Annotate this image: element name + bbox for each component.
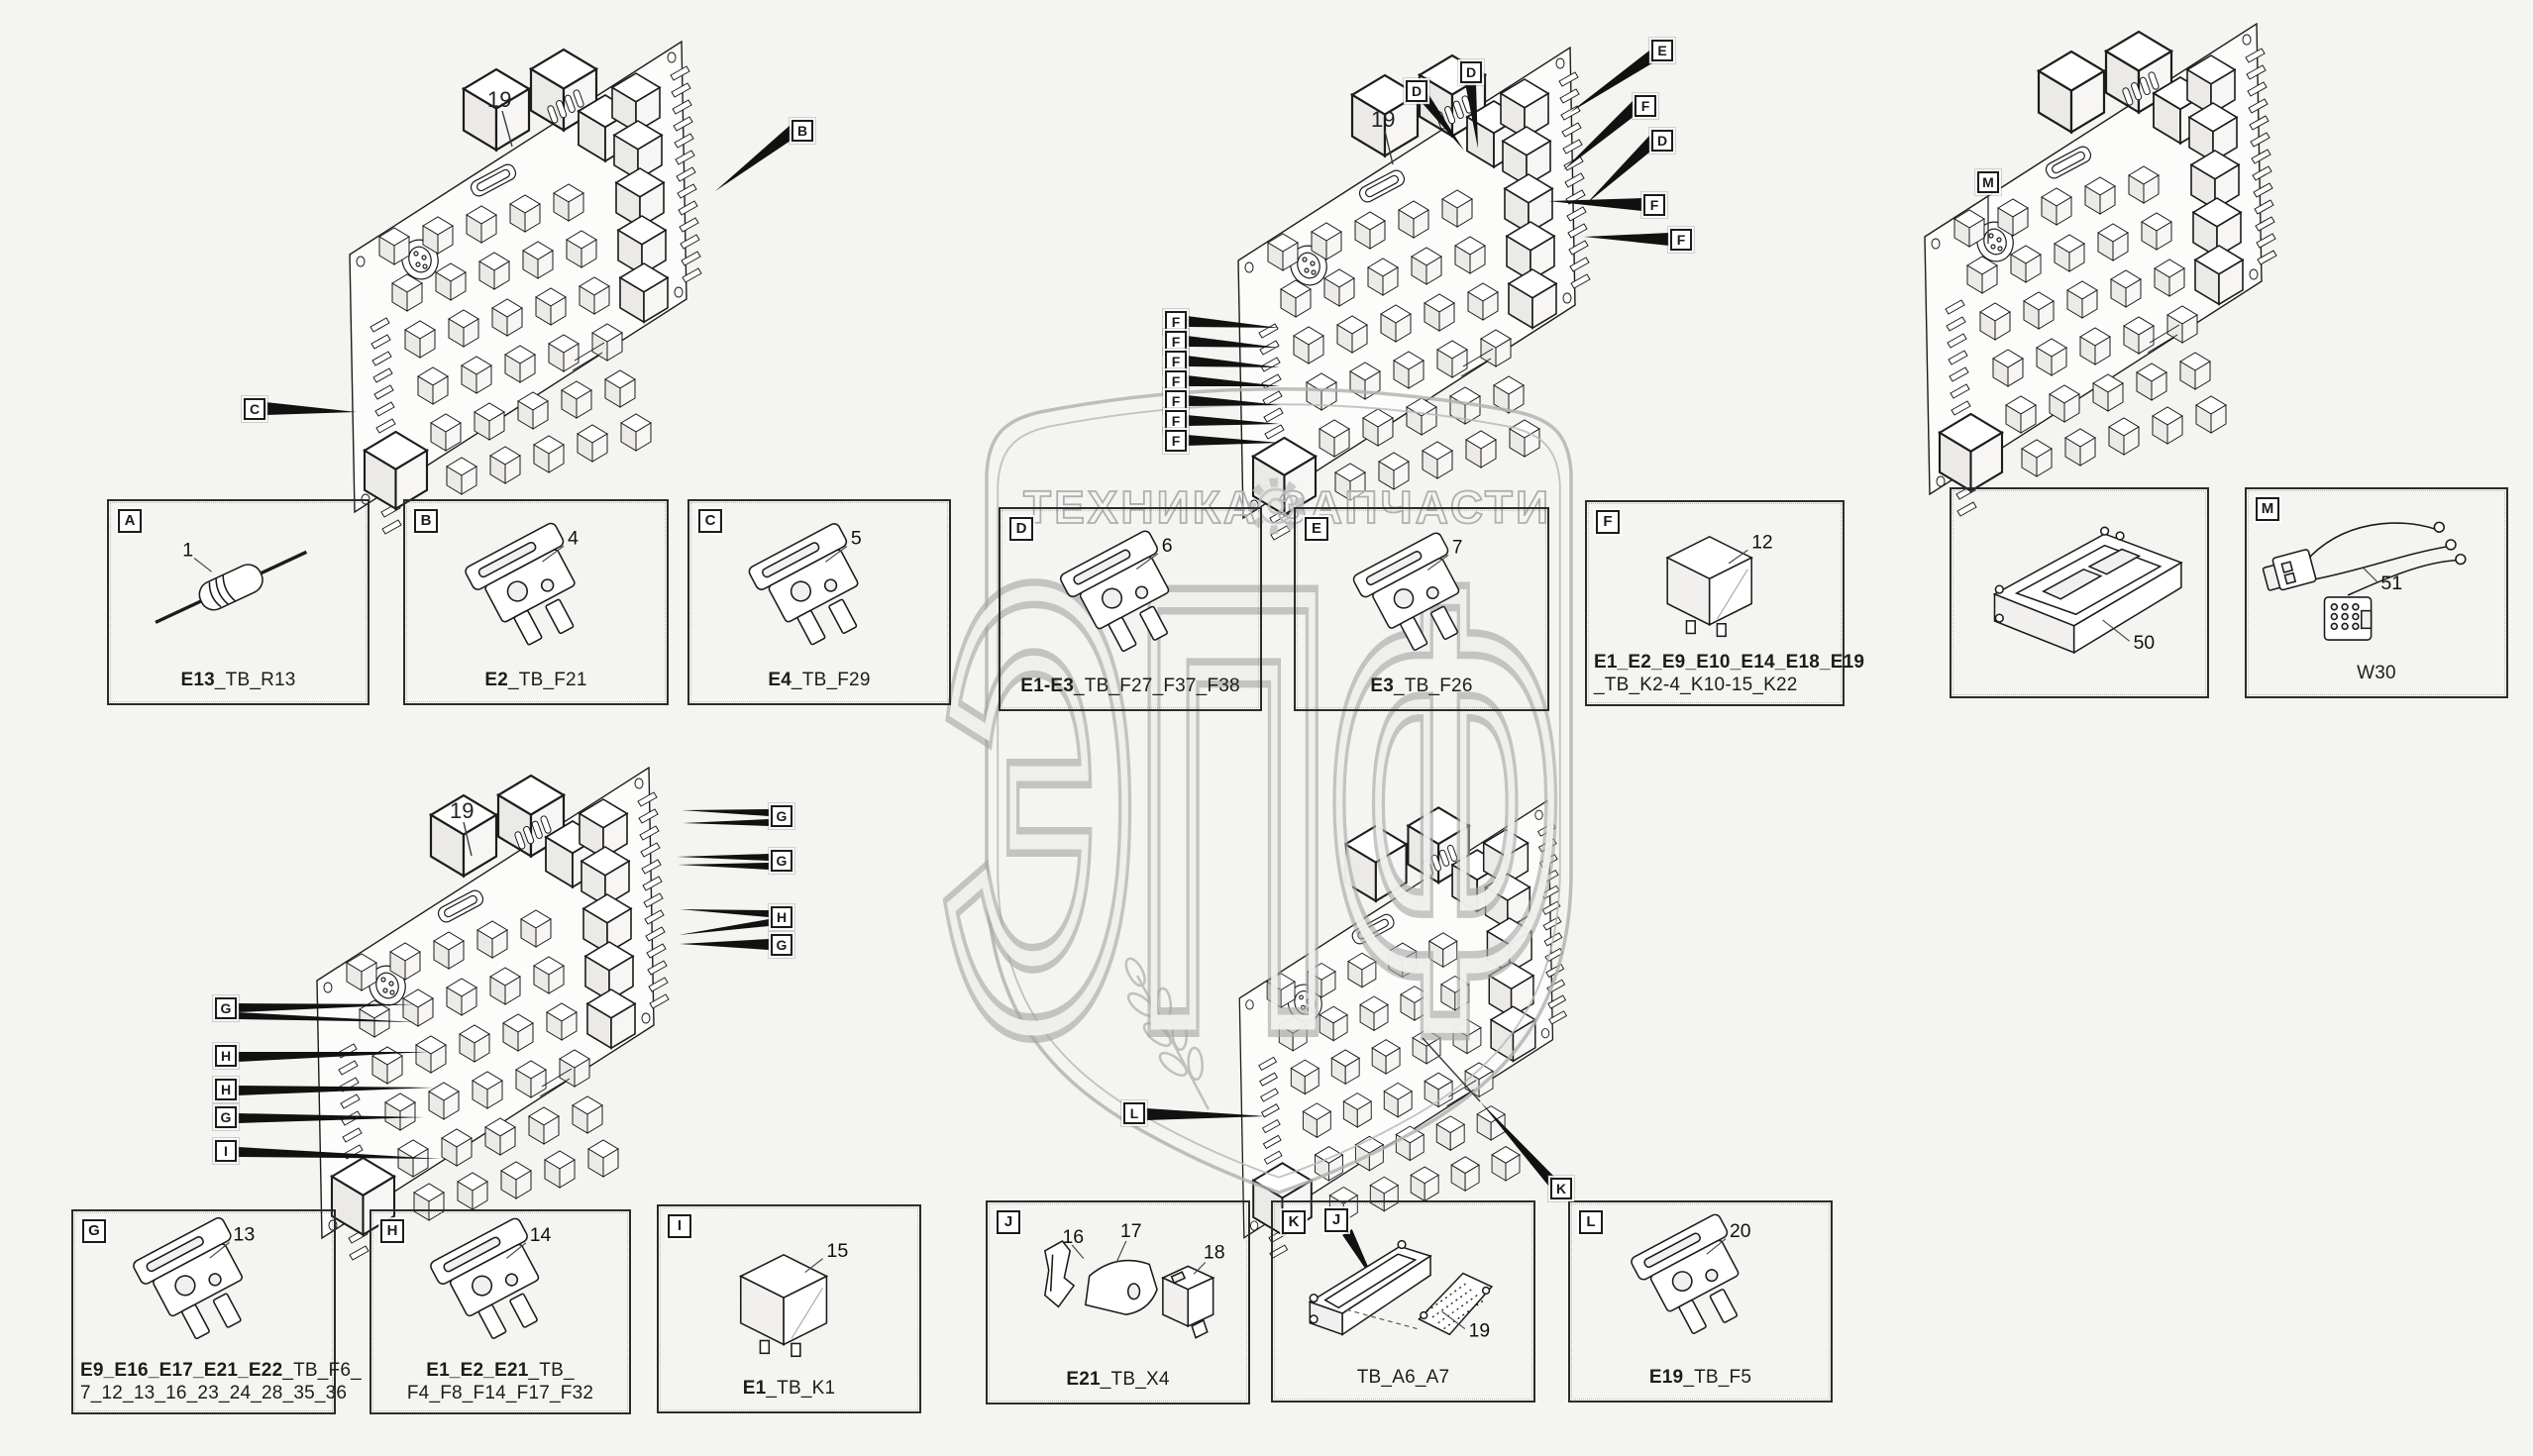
detail-box-E-letter: E xyxy=(1305,517,1328,541)
part-caption: W30 xyxy=(2247,663,2506,684)
svg-text:50: 50 xyxy=(2134,633,2155,654)
fusebox-board-top-left xyxy=(350,42,701,534)
callout-D2: D xyxy=(1460,61,1482,83)
callout-G-l1: G xyxy=(215,997,237,1019)
callout-F-col-3: F xyxy=(1165,351,1187,372)
part-caption: E9_E16_E17_E21_E22_TB_F6_ 7_12_13_16_23_… xyxy=(73,1359,334,1404)
detail-box-D-letter: D xyxy=(1009,517,1033,541)
part-caption: E21_TB_X4 xyxy=(988,1369,1248,1391)
callout-G-r4: G xyxy=(771,934,792,956)
svg-text:16: 16 xyxy=(1062,1226,1084,1248)
parts-diagram-page: ЭПФ ЭПФ ТЕХНИКА ЗАПЧАСТИ xyxy=(0,0,2533,1456)
callout-F3: F xyxy=(1670,229,1692,251)
svg-text:18: 18 xyxy=(1204,1242,1225,1264)
detail-box-B: B 4 E2_TB_F21 xyxy=(403,499,669,705)
callout-G-r2: G xyxy=(771,850,792,872)
callout-I-l5: I xyxy=(215,1140,237,1162)
board2-item-number: 19 xyxy=(1371,107,1395,133)
detail-box-J: J 16 17 18 E21_TB_X4 xyxy=(986,1200,1250,1404)
callout-F-col-1: F xyxy=(1165,311,1187,333)
svg-text:6: 6 xyxy=(1162,535,1173,557)
detail-box-K-letter: K xyxy=(1282,1210,1306,1234)
callout-H-l3: H xyxy=(215,1079,237,1100)
svg-text:19: 19 xyxy=(1469,1320,1490,1341)
callout-G-l4: G xyxy=(215,1106,237,1128)
fusebox-board-top-middle xyxy=(1238,48,1590,540)
svg-text:51: 51 xyxy=(2380,572,2402,594)
part-caption: E19_TB_F5 xyxy=(1570,1367,1831,1389)
svg-text:15: 15 xyxy=(826,1240,848,1262)
part-caption: E4_TB_F29 xyxy=(689,670,949,691)
detail-box-D: D 6 E1-E3_TB_F27_F37_F38 xyxy=(999,507,1262,711)
callout-F-col-5: F xyxy=(1165,390,1187,412)
svg-text:5: 5 xyxy=(851,528,862,550)
detail-box-G-letter: G xyxy=(82,1219,106,1243)
detail-box-M: M 51 W30 xyxy=(2245,487,2508,698)
callout-F-col-7: F xyxy=(1165,430,1187,452)
detail-box-G: G 13 E9_E16_E17_E21_E22_TB_F6_ 7_12_13_1… xyxy=(71,1209,336,1414)
callout-F2: F xyxy=(1643,194,1665,216)
svg-text:12: 12 xyxy=(1751,532,1772,553)
callout-G-r1: G xyxy=(771,805,792,827)
detail-box-K: K J 19 TB_A6_A7 xyxy=(1271,1200,1535,1403)
svg-text:20: 20 xyxy=(1730,1221,1750,1242)
callout-L: L xyxy=(1123,1102,1145,1124)
callout-B: B xyxy=(792,120,813,142)
svg-text:14: 14 xyxy=(530,1224,552,1246)
detail-box-C: C 5 E4_TB_F29 xyxy=(687,499,951,705)
module-bracket-figure: 50 xyxy=(1952,489,2207,696)
callout-D1: D xyxy=(1406,80,1427,102)
detail-box-B-letter: B xyxy=(414,509,438,533)
callout-K: K xyxy=(1550,1178,1572,1199)
callout-F1: F xyxy=(1635,95,1656,117)
part-caption: TB_A6_A7 xyxy=(1273,1367,1533,1389)
detail-box-I: I 15 E1_TB_K1 xyxy=(657,1204,921,1413)
callout-F-col-2: F xyxy=(1165,331,1187,353)
svg-text:13: 13 xyxy=(233,1223,255,1245)
svg-text:7: 7 xyxy=(1452,537,1463,558)
detail-box-H-letter: H xyxy=(380,1219,404,1243)
detail-box-H: H 14 E1_E2_E21_TB_ F4_F8_F14_F17_F32 xyxy=(369,1209,631,1414)
callout-H-l2: H xyxy=(215,1045,237,1067)
detail-box-C-letter: C xyxy=(698,509,722,533)
detail-box-L-letter: L xyxy=(1579,1210,1603,1234)
detail-box-F-letter: F xyxy=(1596,510,1620,534)
board4-item-number: 19 xyxy=(450,798,474,824)
detail-box-A: A 1 E13_TB_R13 xyxy=(107,499,369,705)
detail-box-J-letter: J xyxy=(997,1210,1020,1234)
svg-text:4: 4 xyxy=(568,527,579,549)
detail-box-A-letter: A xyxy=(118,509,142,533)
detail-box-L: L 20 E19_TB_F5 xyxy=(1568,1200,1833,1403)
part-caption: E3_TB_F26 xyxy=(1296,676,1547,697)
callout-F-col-4: F xyxy=(1165,370,1187,392)
detail-box-M-letter: M xyxy=(2256,497,2279,521)
fusebox-board-bottom-left xyxy=(317,768,669,1260)
detail-box-E: E 7 E3_TB_F26 xyxy=(1294,507,1549,711)
fusebox-board-top-right xyxy=(1925,24,2276,516)
callout-C: C xyxy=(244,398,265,420)
part-caption: E1-E3_TB_F27_F37_F38 xyxy=(1001,676,1260,697)
part-caption: E2_TB_F21 xyxy=(405,670,667,691)
detail-box-module: 50 xyxy=(1950,487,2209,698)
callout-D3: D xyxy=(1651,130,1673,152)
svg-text:17: 17 xyxy=(1120,1220,1142,1242)
callout-H-r3: H xyxy=(771,906,792,928)
board1-item-number: 19 xyxy=(487,87,511,113)
part-caption: E13_TB_R13 xyxy=(109,670,368,691)
detail-box-K-sub-label-J: J xyxy=(1324,1208,1348,1232)
callout-M: M xyxy=(1977,171,1999,193)
detail-box-F: F 12 E1_E2_E9_E10_E14_E18_E19 _TB_K2-4_K… xyxy=(1585,500,1845,706)
svg-text:1: 1 xyxy=(182,540,193,562)
part-caption: E1_E2_E21_TB_ F4_F8_F14_F17_F32 xyxy=(371,1359,629,1404)
detail-box-I-letter: I xyxy=(668,1214,691,1238)
callout-E: E xyxy=(1651,40,1673,61)
callout-F-col-6: F xyxy=(1165,410,1187,432)
part-caption: E1_TB_K1 xyxy=(659,1378,919,1400)
part-caption: E1_E2_E9_E10_E14_E18_E19 _TB_K2-4_K10-15… xyxy=(1587,651,1843,696)
